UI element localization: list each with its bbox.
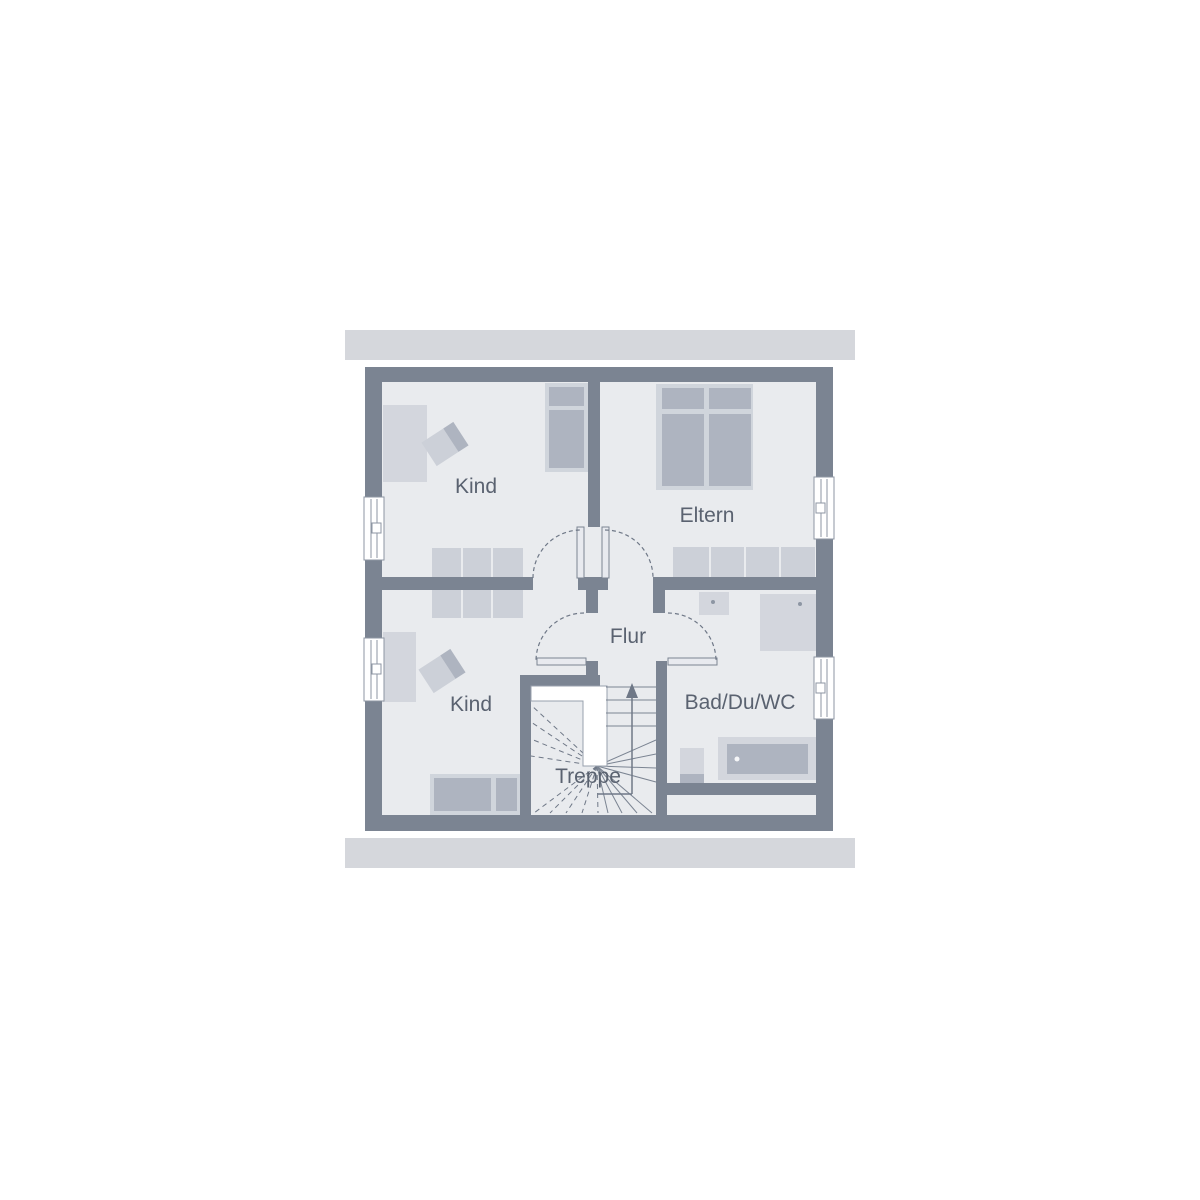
bed-pillow bbox=[709, 388, 751, 409]
bed-pillow bbox=[549, 387, 584, 406]
room-label-bad: Bad/Du/WC bbox=[685, 691, 796, 714]
window-eltern bbox=[814, 477, 834, 539]
door-leaf-eltern bbox=[602, 527, 609, 578]
window-kind-top bbox=[364, 497, 384, 560]
wall-bad-stub bbox=[653, 577, 665, 613]
wardrobe bbox=[383, 405, 427, 482]
bed-mattress bbox=[662, 414, 704, 486]
window-kind-bottom bbox=[364, 638, 384, 701]
vanity-counter bbox=[760, 594, 816, 651]
closet-row bbox=[432, 548, 523, 578]
bed-mattress bbox=[549, 410, 584, 468]
roof-band-top bbox=[345, 330, 855, 360]
outer-wall-right bbox=[816, 367, 833, 831]
bed-mattress bbox=[434, 778, 491, 811]
wall-stair-right bbox=[656, 661, 667, 815]
outer-wall-left bbox=[365, 367, 382, 831]
room-label-eltern: Eltern bbox=[680, 504, 735, 527]
room-label-kind-bottom: Kind bbox=[450, 693, 492, 716]
door-leaf-kind-top bbox=[577, 527, 584, 578]
wardrobe bbox=[383, 632, 416, 702]
bed-pillow bbox=[662, 388, 704, 409]
outer-wall-bottom bbox=[365, 815, 833, 831]
bed-mattress bbox=[709, 414, 751, 486]
toilet-cistern bbox=[680, 748, 704, 774]
door-leaf-kind-bottom bbox=[537, 658, 586, 665]
bed-pillow bbox=[496, 778, 517, 811]
wall-bad-bottom bbox=[667, 783, 816, 795]
room-label-flur: Flur bbox=[610, 625, 646, 648]
room-label-kind-top: Kind bbox=[455, 475, 497, 498]
floor-plan-canvas: Kind Eltern Flur Kind Treppe Bad/Du/WC bbox=[0, 0, 1200, 1200]
door-leaf-bad bbox=[668, 658, 717, 665]
room-label-treppe: Treppe bbox=[555, 765, 621, 788]
wall-center-block bbox=[578, 577, 608, 590]
bathtub-faucet bbox=[735, 757, 740, 762]
wall-kind-divider bbox=[382, 577, 533, 590]
wall-stair-left bbox=[520, 675, 531, 815]
wall-stair-top bbox=[520, 675, 600, 687]
wall-kind-eltern bbox=[588, 380, 600, 527]
wall-center-stub bbox=[586, 590, 598, 613]
window-bad bbox=[814, 657, 834, 719]
wall-eltern-bad bbox=[653, 577, 816, 590]
closet-row bbox=[432, 590, 523, 618]
outer-wall-top bbox=[365, 367, 833, 382]
floor-plan-drawing: Kind Eltern Flur Kind Treppe Bad/Du/WC bbox=[0, 0, 1200, 1200]
roof-band-bottom bbox=[345, 838, 855, 868]
